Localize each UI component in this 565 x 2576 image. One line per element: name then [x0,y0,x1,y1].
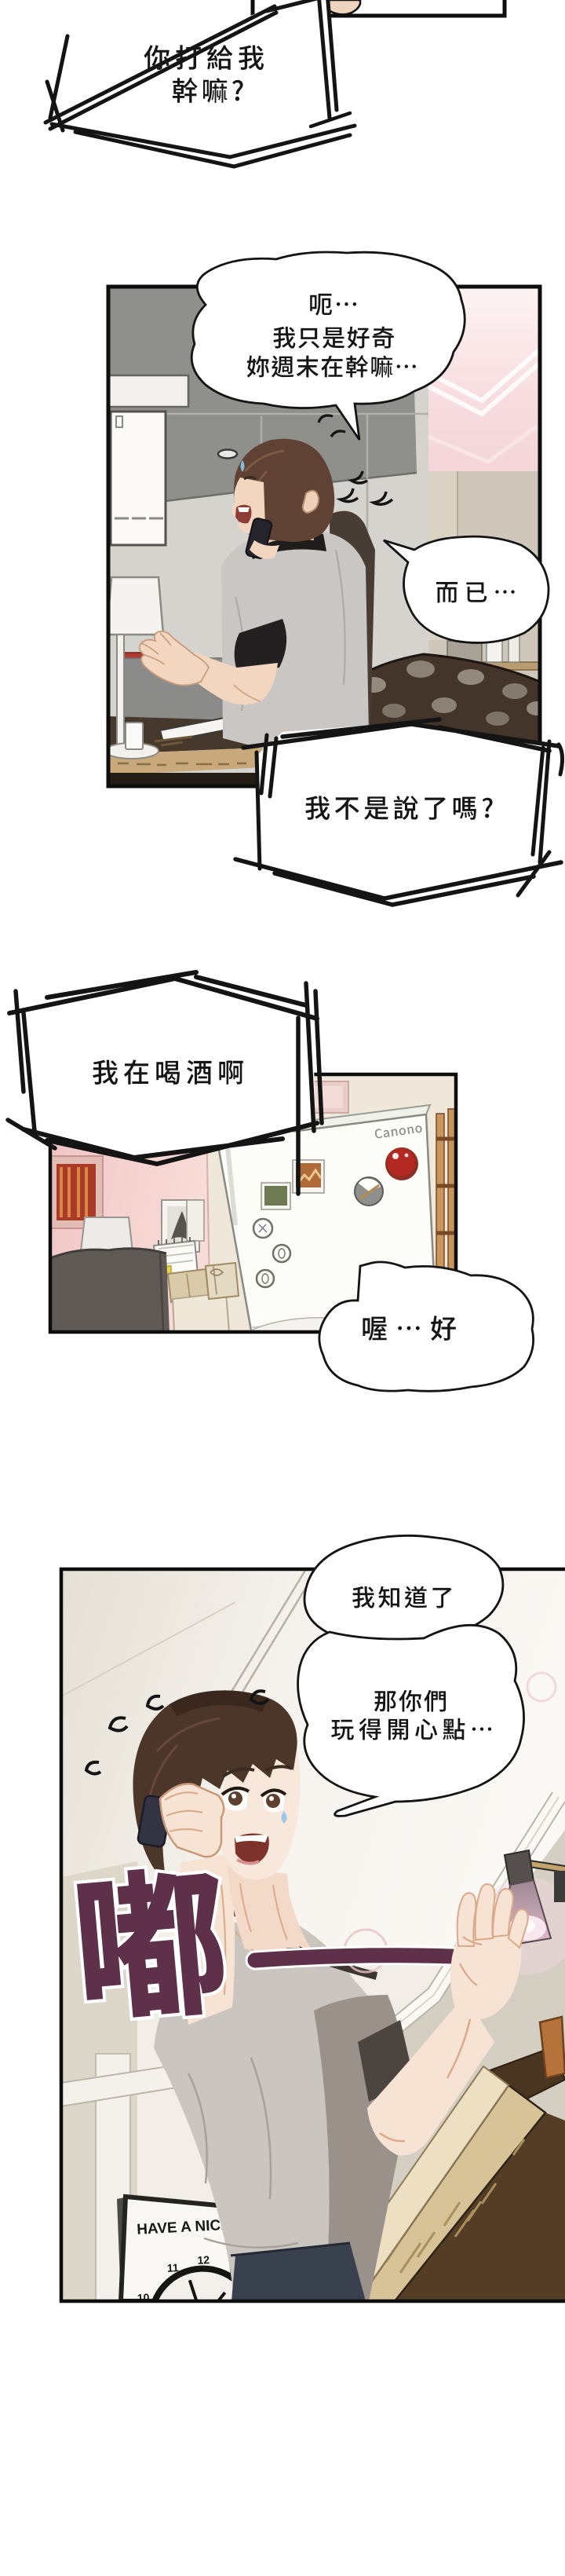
svg-text:11: 11 [166,2261,179,2274]
svg-text:12: 12 [197,2253,210,2267]
